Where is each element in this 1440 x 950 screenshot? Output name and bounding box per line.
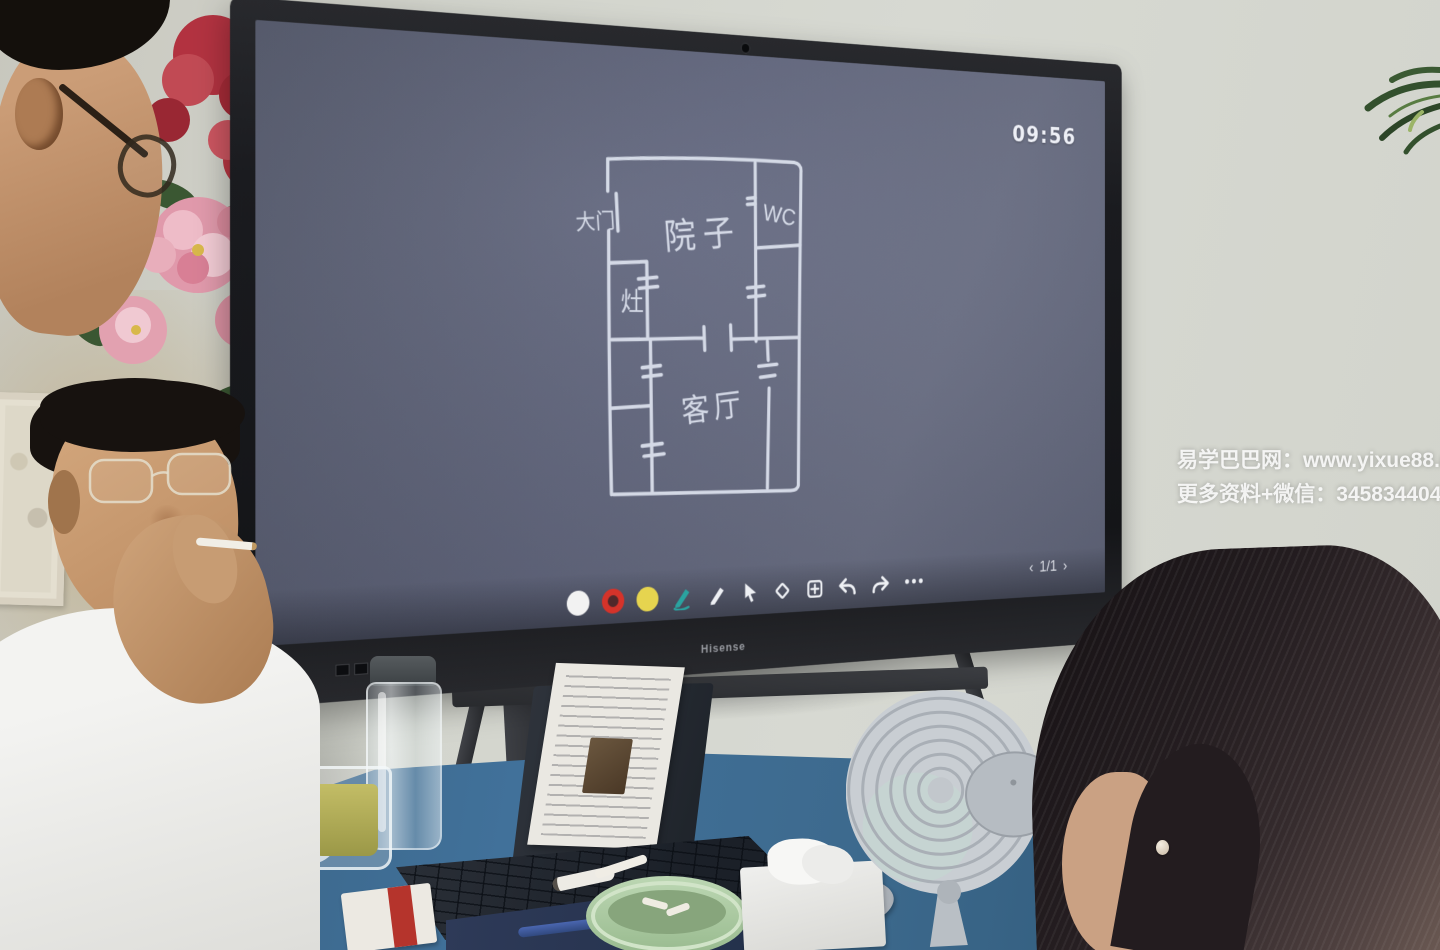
watermark: 易学巴巴网：www.yixue88.cn 更多资料+微信：3458344044 — [1177, 444, 1440, 512]
meeting-room-photo: 09:56 — [0, 0, 1440, 950]
man-front-ear — [48, 470, 80, 534]
brand-logo: Hisense — [701, 639, 746, 656]
page-indicator: ‹ 1/1 › — [1029, 557, 1067, 577]
pen-icon[interactable] — [706, 581, 728, 607]
red-ink-swatch[interactable] — [602, 588, 624, 614]
man-back-left-ear — [15, 78, 63, 150]
screen-bezel: 09:56 — [230, 0, 1122, 710]
add-board-icon[interactable] — [804, 576, 825, 602]
label-wc: WC — [761, 200, 797, 231]
lower-left-divider — [611, 406, 650, 409]
cursor-icon[interactable] — [740, 581, 760, 605]
watermark-line2: 更多资料+微信：3458344044 — [1177, 478, 1440, 512]
yellow-ink-swatch[interactable] — [637, 586, 659, 612]
palm-plant-leaves — [1352, 56, 1440, 188]
screen-clock: 09:56 — [1012, 121, 1076, 150]
mid-wall-left — [611, 326, 704, 350]
whiteboard-canvas[interactable]: 09:56 — [255, 20, 1105, 647]
label-stove: 灶 — [621, 288, 644, 317]
next-page-arrow[interactable]: › — [1063, 557, 1067, 575]
celadon-ashtray — [586, 876, 748, 950]
wall-bottom — [613, 485, 798, 496]
lower-right-wall — [759, 341, 777, 488]
wc-wall-bottom — [756, 244, 800, 249]
eraser-icon[interactable] — [772, 578, 793, 604]
page-count: 1/1 — [1039, 558, 1057, 577]
redo-icon[interactable] — [870, 572, 892, 599]
camera-dot — [741, 43, 750, 54]
white-ink-swatch[interactable] — [567, 590, 590, 616]
gate-door-leaf — [616, 194, 618, 231]
label-courtyard: 院子 — [663, 212, 743, 257]
floorplan-drawing: 大门 院子 WC 灶 客厅 — [560, 127, 853, 526]
active-pen-icon[interactable] — [671, 582, 695, 610]
pearl-earring — [1156, 840, 1169, 855]
cigarette-pack-band — [387, 885, 418, 947]
undo-icon[interactable] — [837, 573, 859, 600]
man-front-left — [0, 370, 340, 950]
wc-wall-vertical — [755, 163, 756, 342]
lower-left-wall — [650, 340, 652, 492]
wall-left — [609, 231, 612, 495]
prev-page-arrow[interactable]: ‹ — [1029, 559, 1033, 577]
cigarette-pack — [341, 883, 438, 950]
mid-wall-right — [731, 325, 800, 350]
interactive-whiteboard: 09:56 — [230, 0, 1122, 710]
document-photo — [582, 738, 633, 795]
rimless-glasses — [88, 448, 238, 506]
label-gate: 大门 — [575, 209, 616, 235]
watermark-line1: 易学巴巴网：www.yixue88.cn — [1177, 444, 1440, 478]
label-living-room: 客厅 — [680, 386, 747, 429]
man-back-left-hair — [0, 0, 170, 70]
more-icon[interactable] — [902, 568, 926, 597]
man-back-left — [0, 0, 195, 340]
